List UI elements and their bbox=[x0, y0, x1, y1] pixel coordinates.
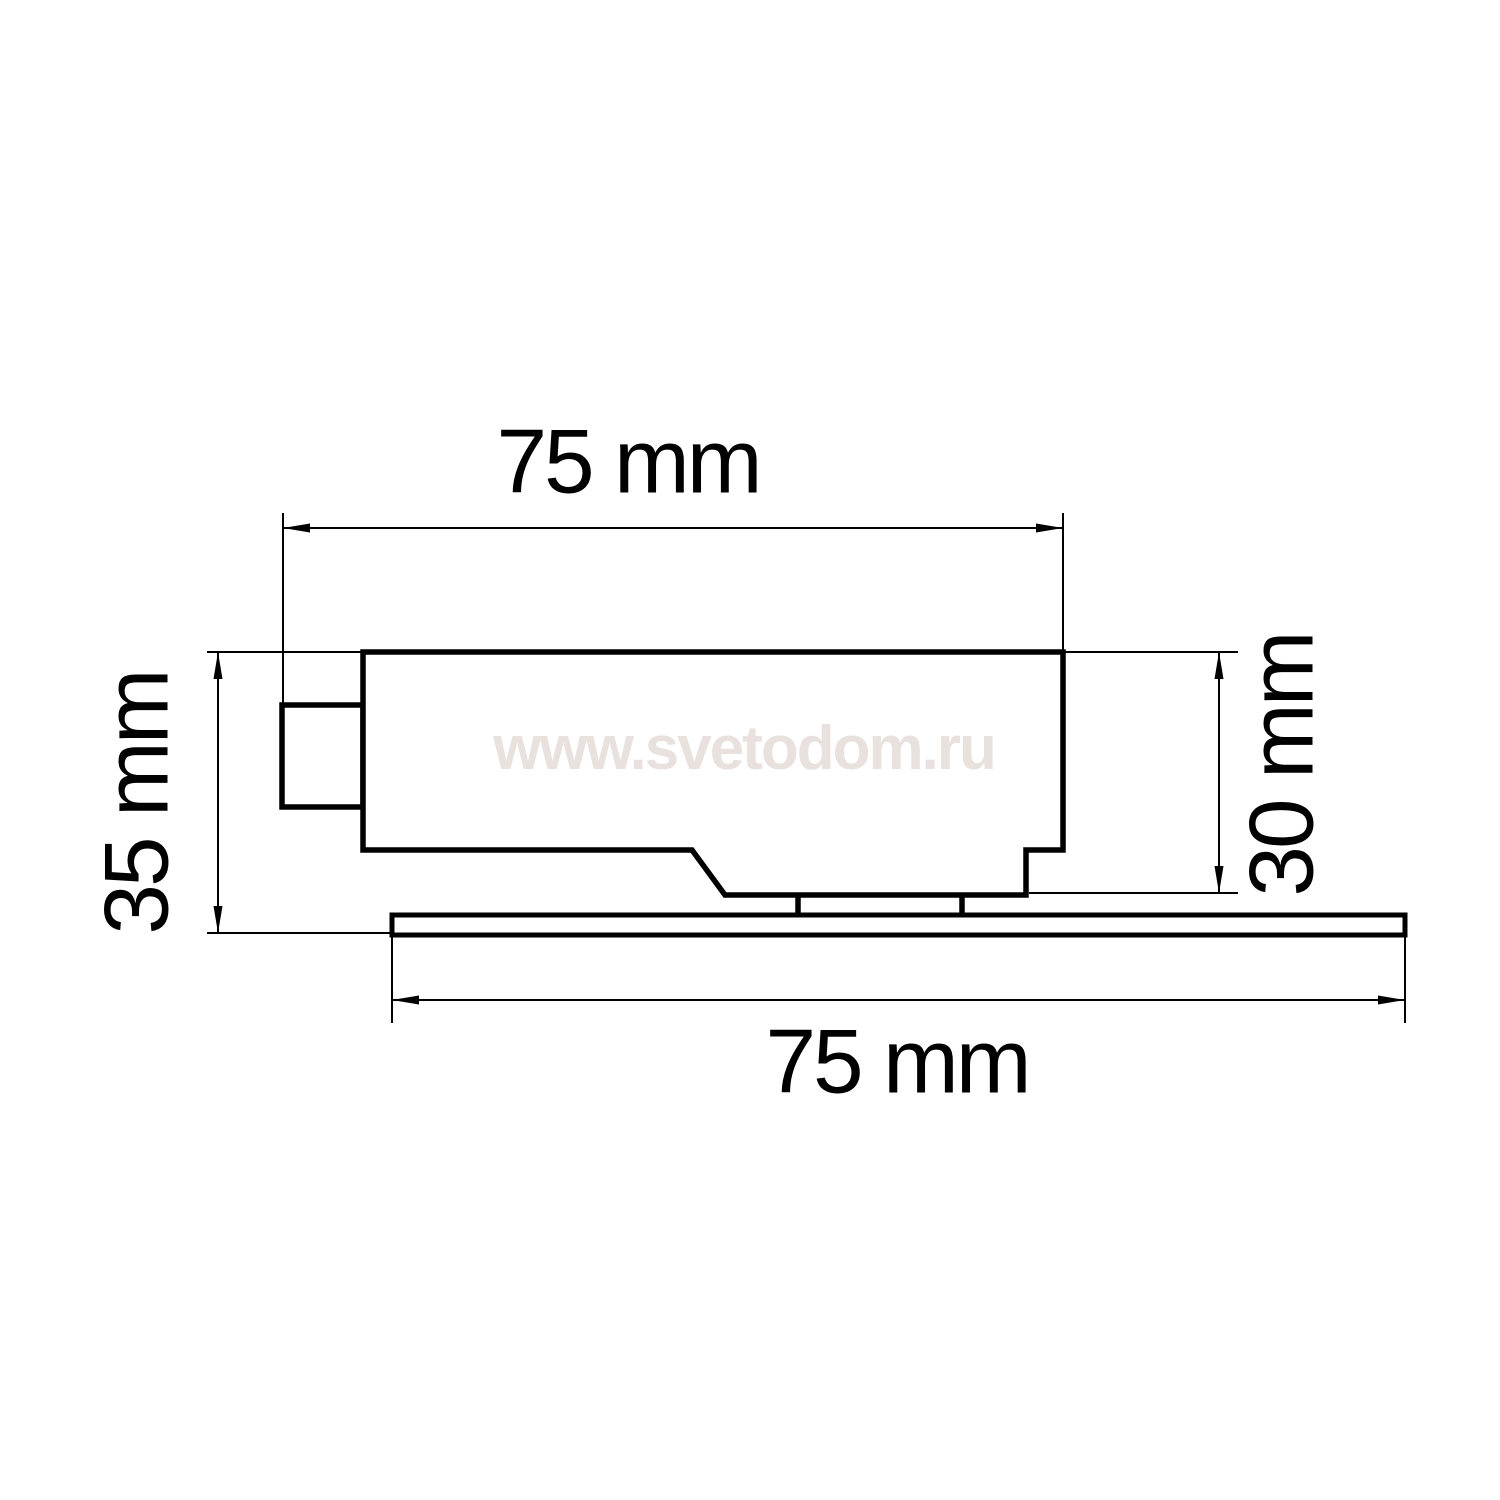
arrowhead-bottom-right bbox=[1378, 996, 1405, 1005]
technical-drawing-page: www.svetodom.ru 75 mm 35 mm 30 mm 75 mm bbox=[0, 0, 1500, 1500]
dimension-label-right: 30 mm bbox=[1237, 633, 1328, 896]
arrowhead-right-down bbox=[1215, 866, 1224, 893]
connector-protrusion-outline bbox=[282, 705, 363, 807]
arrowhead-left-down bbox=[214, 906, 223, 933]
dimension-label-left: 35 mm bbox=[92, 671, 183, 934]
dimension-label-top: 75 mm bbox=[496, 417, 759, 508]
watermark-text: www.svetodom.ru bbox=[493, 718, 995, 780]
arrowhead-top-left bbox=[283, 524, 310, 533]
arrowhead-top-right bbox=[1036, 524, 1063, 533]
arrowhead-bottom-left bbox=[392, 996, 419, 1005]
mounting-plate-outline bbox=[392, 915, 1405, 935]
dimension-label-bottom: 75 mm bbox=[765, 1017, 1028, 1108]
arrowhead-left-up bbox=[214, 652, 223, 679]
arrowhead-right-up bbox=[1215, 652, 1224, 679]
